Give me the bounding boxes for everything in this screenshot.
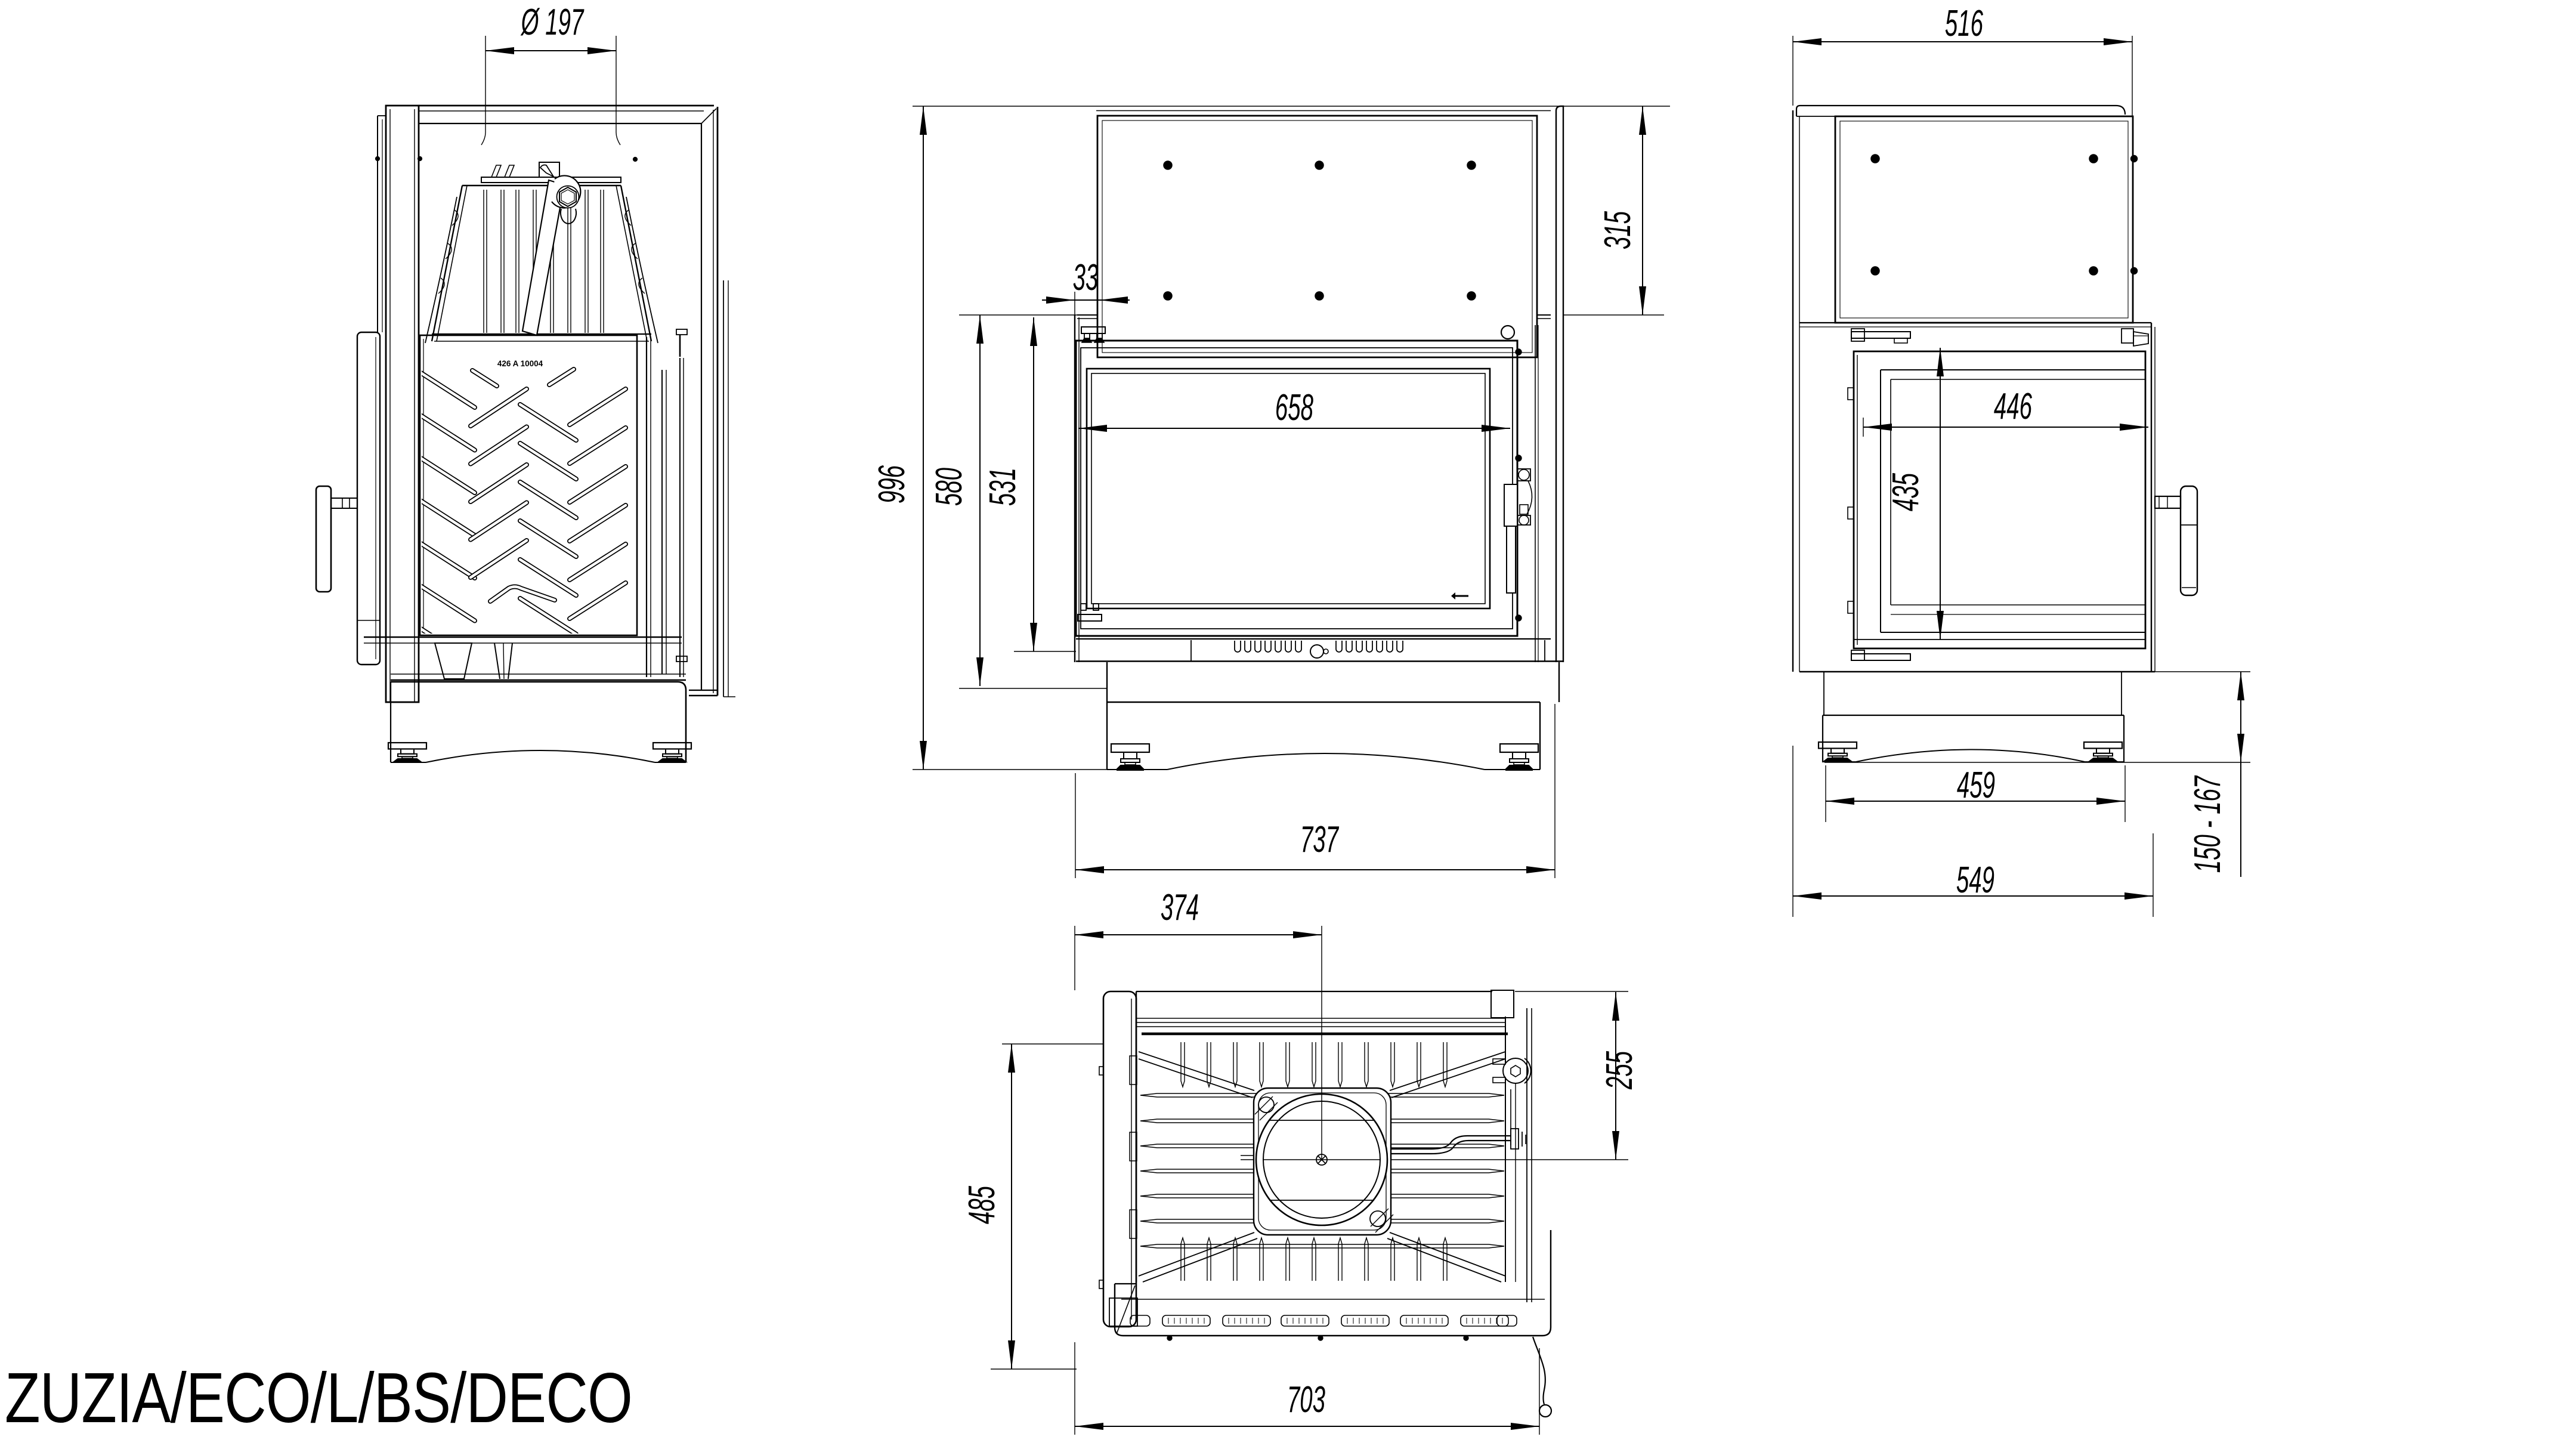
svg-text:150 - 167: 150 - 167: [2187, 775, 2228, 873]
svg-text:996: 996: [871, 465, 913, 503]
svg-text:485: 485: [961, 1186, 1003, 1224]
svg-text:703: 703: [1287, 1379, 1325, 1420]
svg-text:531: 531: [982, 468, 1023, 506]
svg-text:426 A 10004: 426 A 10004: [497, 359, 543, 368]
svg-text:580: 580: [928, 468, 970, 506]
svg-text:374: 374: [1161, 886, 1199, 928]
svg-text:549: 549: [1956, 859, 1994, 901]
svg-text:737: 737: [1300, 818, 1340, 860]
svg-text:446: 446: [1994, 385, 2032, 427]
svg-text:ZUZIA/ECO/L/BS/DECO: ZUZIA/ECO/L/BS/DECO: [5, 1358, 632, 1438]
svg-text:516: 516: [1945, 2, 1983, 44]
svg-text:459: 459: [1957, 764, 1995, 806]
svg-text:315: 315: [1597, 211, 1638, 249]
svg-text:Ø 197: Ø 197: [520, 1, 585, 43]
svg-text:435: 435: [1885, 473, 1926, 511]
svg-text:33: 33: [1073, 257, 1099, 298]
svg-text:658: 658: [1275, 387, 1313, 428]
svg-text:255: 255: [1598, 1051, 1640, 1090]
